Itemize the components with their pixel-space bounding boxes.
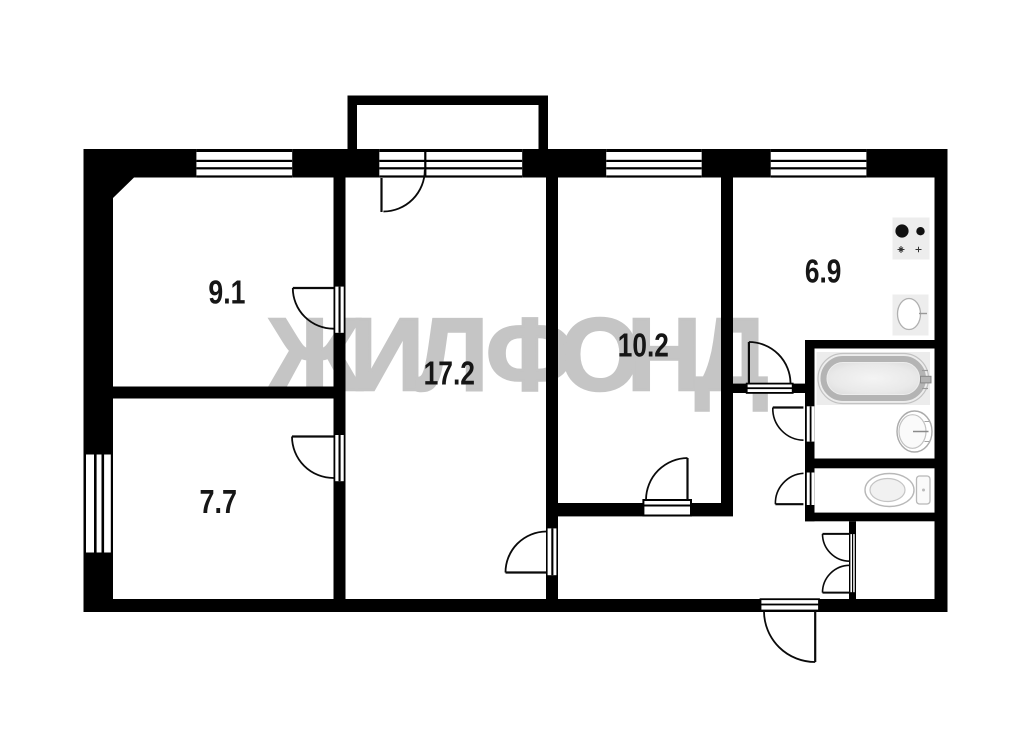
svg-text:9.1: 9.1 bbox=[208, 274, 245, 311]
svg-text:И: И bbox=[350, 297, 424, 412]
svg-text:17.2: 17.2 bbox=[424, 355, 475, 392]
svg-text:10.2: 10.2 bbox=[618, 327, 669, 364]
svg-text:7.7: 7.7 bbox=[200, 483, 238, 520]
svg-text:6.9: 6.9 bbox=[805, 253, 842, 290]
